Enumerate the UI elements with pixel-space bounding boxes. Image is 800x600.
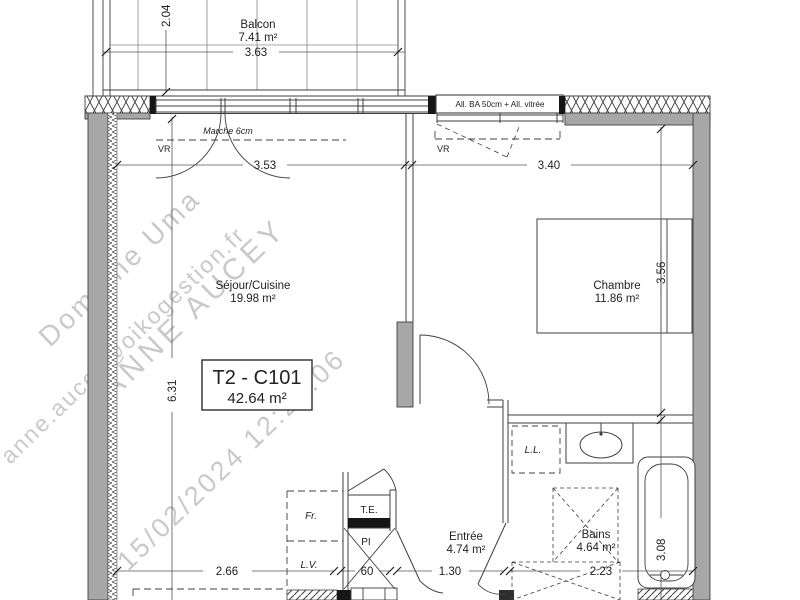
washing-machine: L.L. — [512, 426, 560, 473]
sejour-name: Séjour/Cuisine — [216, 280, 291, 292]
dim-interior-widths: 3.53 3.40 — [113, 160, 697, 172]
chambre-area: 11.86 m² — [595, 293, 640, 305]
balcon-name: Balcon — [240, 19, 275, 31]
dim-kitchen-width-value: 2.66 — [216, 566, 238, 578]
entrance-door — [397, 531, 443, 593]
insulated-wall-left — [85, 96, 150, 113]
unit-code: T2 - C101 — [213, 367, 302, 389]
bedroom-window-frame — [437, 113, 563, 123]
sink — [566, 423, 633, 463]
room-label-balcon: Balcon 7.41 m² — [239, 19, 278, 44]
top-wall: All. BA 50cm + All. vitrée — [85, 95, 710, 125]
dim-balcony-depth-value: 2.04 — [161, 4, 173, 27]
right-wall — [693, 113, 710, 600]
entree-name: Entrée — [449, 531, 483, 543]
dim-bottom-chain: 2.66 60 1.30 2.23 — [113, 566, 697, 578]
partition-wall — [397, 113, 413, 407]
dim-balcony-depth: 2.04 — [161, 4, 173, 96]
dim-bains-width-value: 2.23 — [590, 566, 612, 578]
insulated-wall-right — [565, 96, 710, 113]
dim-sejour-width-value: 3.53 — [254, 160, 276, 172]
floor-plan-page: Domaine Uma anne.aucey@oikogestion.fr AN… — [0, 0, 800, 600]
closet-label: PI — [361, 537, 370, 548]
washer-label: L.L. — [525, 445, 542, 456]
floor-plan-canvas: Domaine Uma anne.aucey@oikogestion.fr AN… — [0, 0, 800, 600]
bains-area: 4.64 m² — [577, 542, 616, 554]
technical-cabinet-door — [348, 469, 396, 491]
bathtub — [638, 457, 695, 588]
step-annotation: Marche 6cm — [203, 126, 253, 136]
bedroom-window-shutter: VR — [435, 124, 560, 157]
dishwasher-label: L.V. — [300, 560, 317, 571]
dim-closet-width-value: 60 — [361, 566, 374, 578]
shutter-label-left: VR — [158, 144, 171, 154]
dim-balcony-width-value: 3.63 — [245, 47, 267, 59]
bed — [537, 219, 692, 333]
fridge-label: Fr. — [305, 511, 317, 522]
electrical-label: T.E. — [360, 505, 377, 516]
bedroom-door — [420, 335, 489, 404]
room-label-entree: Entrée 4.74 m² — [447, 531, 486, 556]
sill-annotation: All. BA 50cm + All. vitrée — [456, 100, 545, 109]
dim-chambre-width-value: 3.40 — [538, 160, 560, 172]
dim-chambre-depth-value: 3.56 — [656, 262, 668, 284]
bains-name: Bains — [582, 529, 611, 541]
unit-title-box: T2 - C101 42.64 m² — [202, 360, 312, 410]
unit-area: 42.64 m² — [227, 390, 286, 407]
sejour-area: 19.98 m² — [230, 293, 276, 305]
shutter-label-right: VR — [437, 144, 450, 154]
dim-bains-depth-value: 3.08 — [656, 539, 668, 561]
balcony-french-door: Marche 6cm VR — [156, 113, 346, 178]
dim-sejour-depth-value: 6.31 — [167, 380, 179, 402]
entree-area: 4.74 m² — [447, 544, 486, 556]
dim-balcony-width: 3.63 — [102, 47, 405, 59]
dim-entree-width-value: 1.30 — [439, 566, 461, 578]
balcony-glazed-door-frame — [156, 96, 436, 114]
room-label-bains: Bains 4.64 m² — [577, 529, 616, 554]
chambre-name: Chambre — [593, 280, 640, 292]
left-wall — [88, 113, 117, 600]
balcon-area: 7.41 m² — [239, 32, 278, 44]
room-label-chambre: Chambre 11.86 m² — [593, 280, 640, 305]
window-sill-label: All. BA 50cm + All. vitrée — [436, 95, 563, 113]
